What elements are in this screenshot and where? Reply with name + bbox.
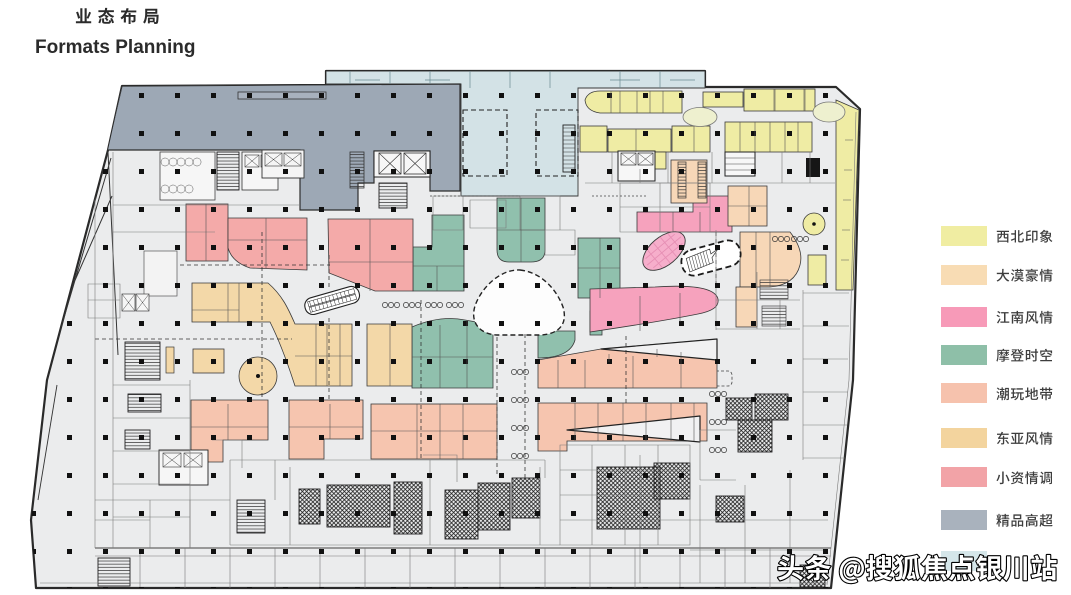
svg-text:Formats Planning: Formats Planning: [35, 37, 195, 58]
